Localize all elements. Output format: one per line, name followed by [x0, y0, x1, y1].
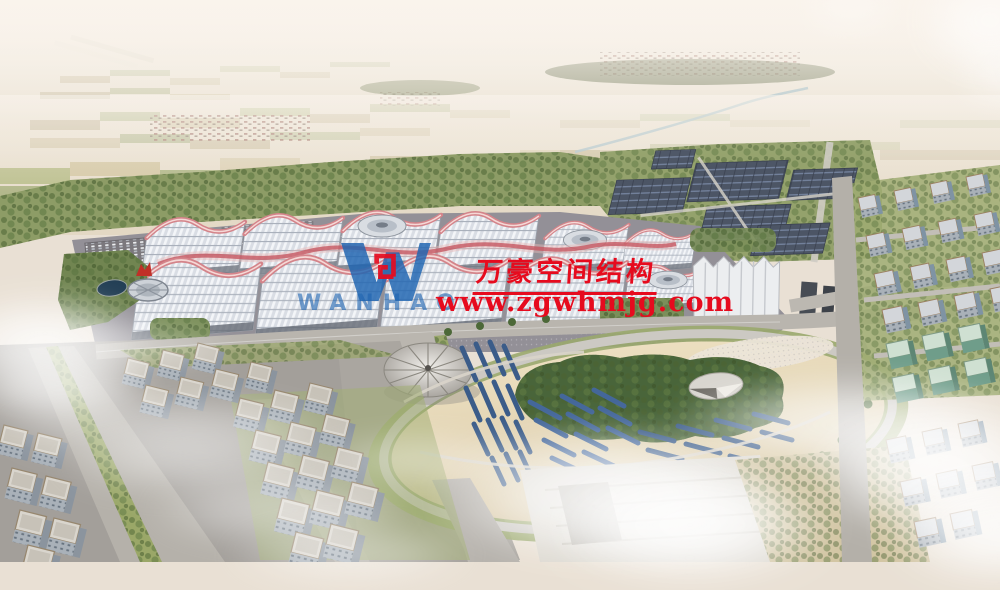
- scene: [0, 0, 1000, 562]
- round-pavilion: [649, 271, 687, 289]
- city-right: [832, 165, 1000, 562]
- exhibition-hall: [255, 257, 385, 337]
- round-pavilion: [358, 215, 406, 237]
- aerial-rendering: WANHAO 万豪空间结构 www.zgwhmjg.com: [0, 0, 1000, 562]
- gateway-building: [128, 279, 168, 301]
